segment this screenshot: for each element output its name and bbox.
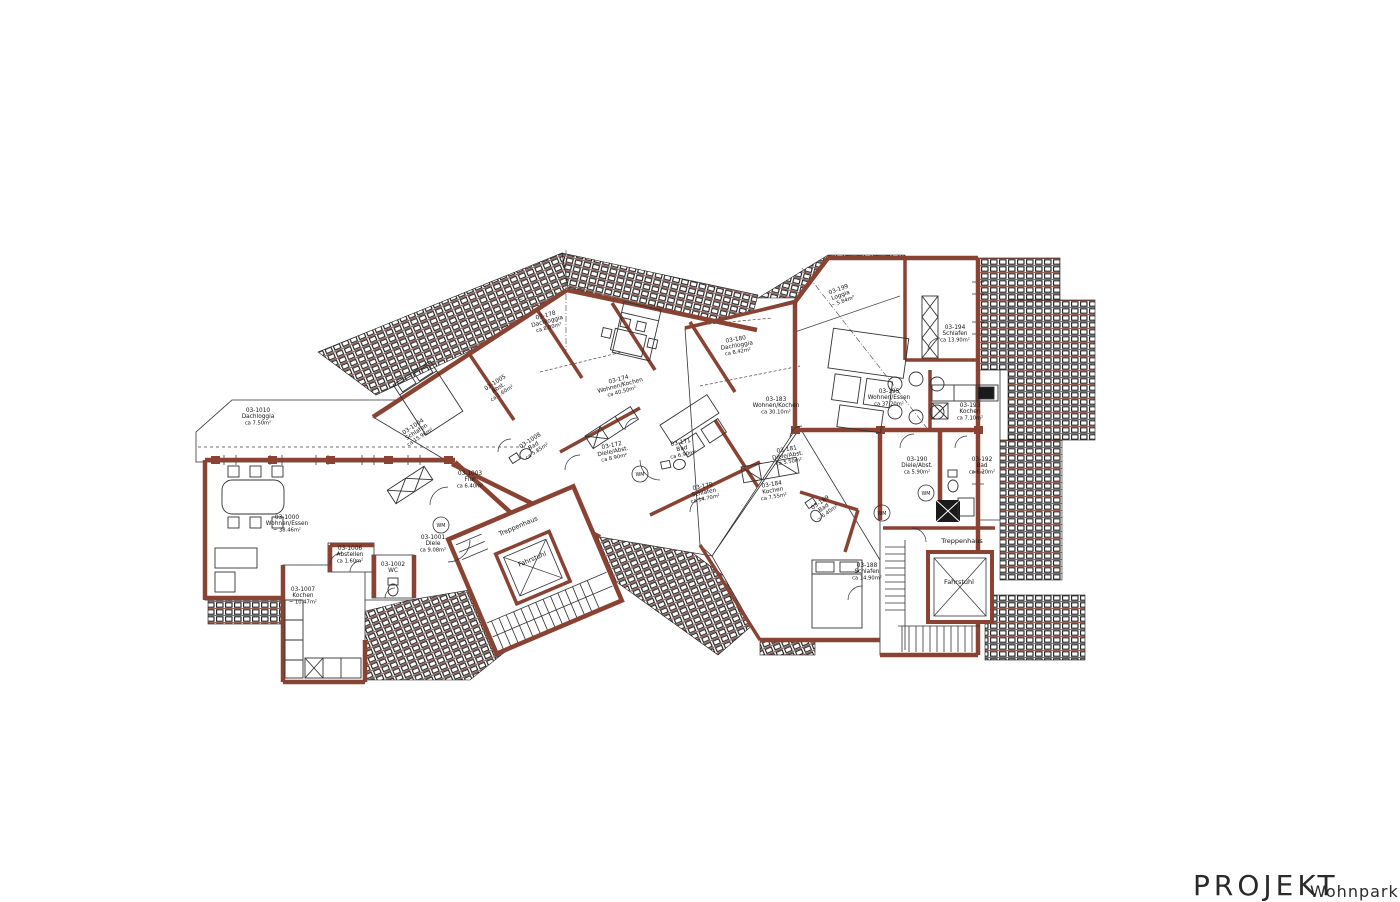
washing-machine-label: WM: [437, 523, 446, 529]
room-label: Treppenhaus: [940, 537, 983, 545]
room-label: 03-1010Dachloggiaca 7.50m²: [242, 408, 275, 426]
floor-plan: 03-1010Dachloggiaca 7.50m²03-1000Wohnen/…: [0, 0, 1400, 900]
washing-machine-label: WM: [636, 472, 645, 478]
room-label: 03-1006Abstellenca 1.60m²: [337, 546, 364, 564]
room-label: 03-193Kochenca 7.10m²: [957, 403, 983, 421]
room-label: Fahrstuhl: [944, 578, 974, 586]
washing-machine-label: WM: [878, 511, 887, 517]
floor-plan-canvas: 03-1010Dachloggiaca 7.50m²03-1000Wohnen/…: [0, 0, 1400, 900]
project-name: Wohnpark an: [1310, 882, 1400, 901]
room-label: 03-1007Kochen~ 10.47m²: [289, 587, 317, 605]
washing-machine-label: WM: [922, 491, 931, 497]
